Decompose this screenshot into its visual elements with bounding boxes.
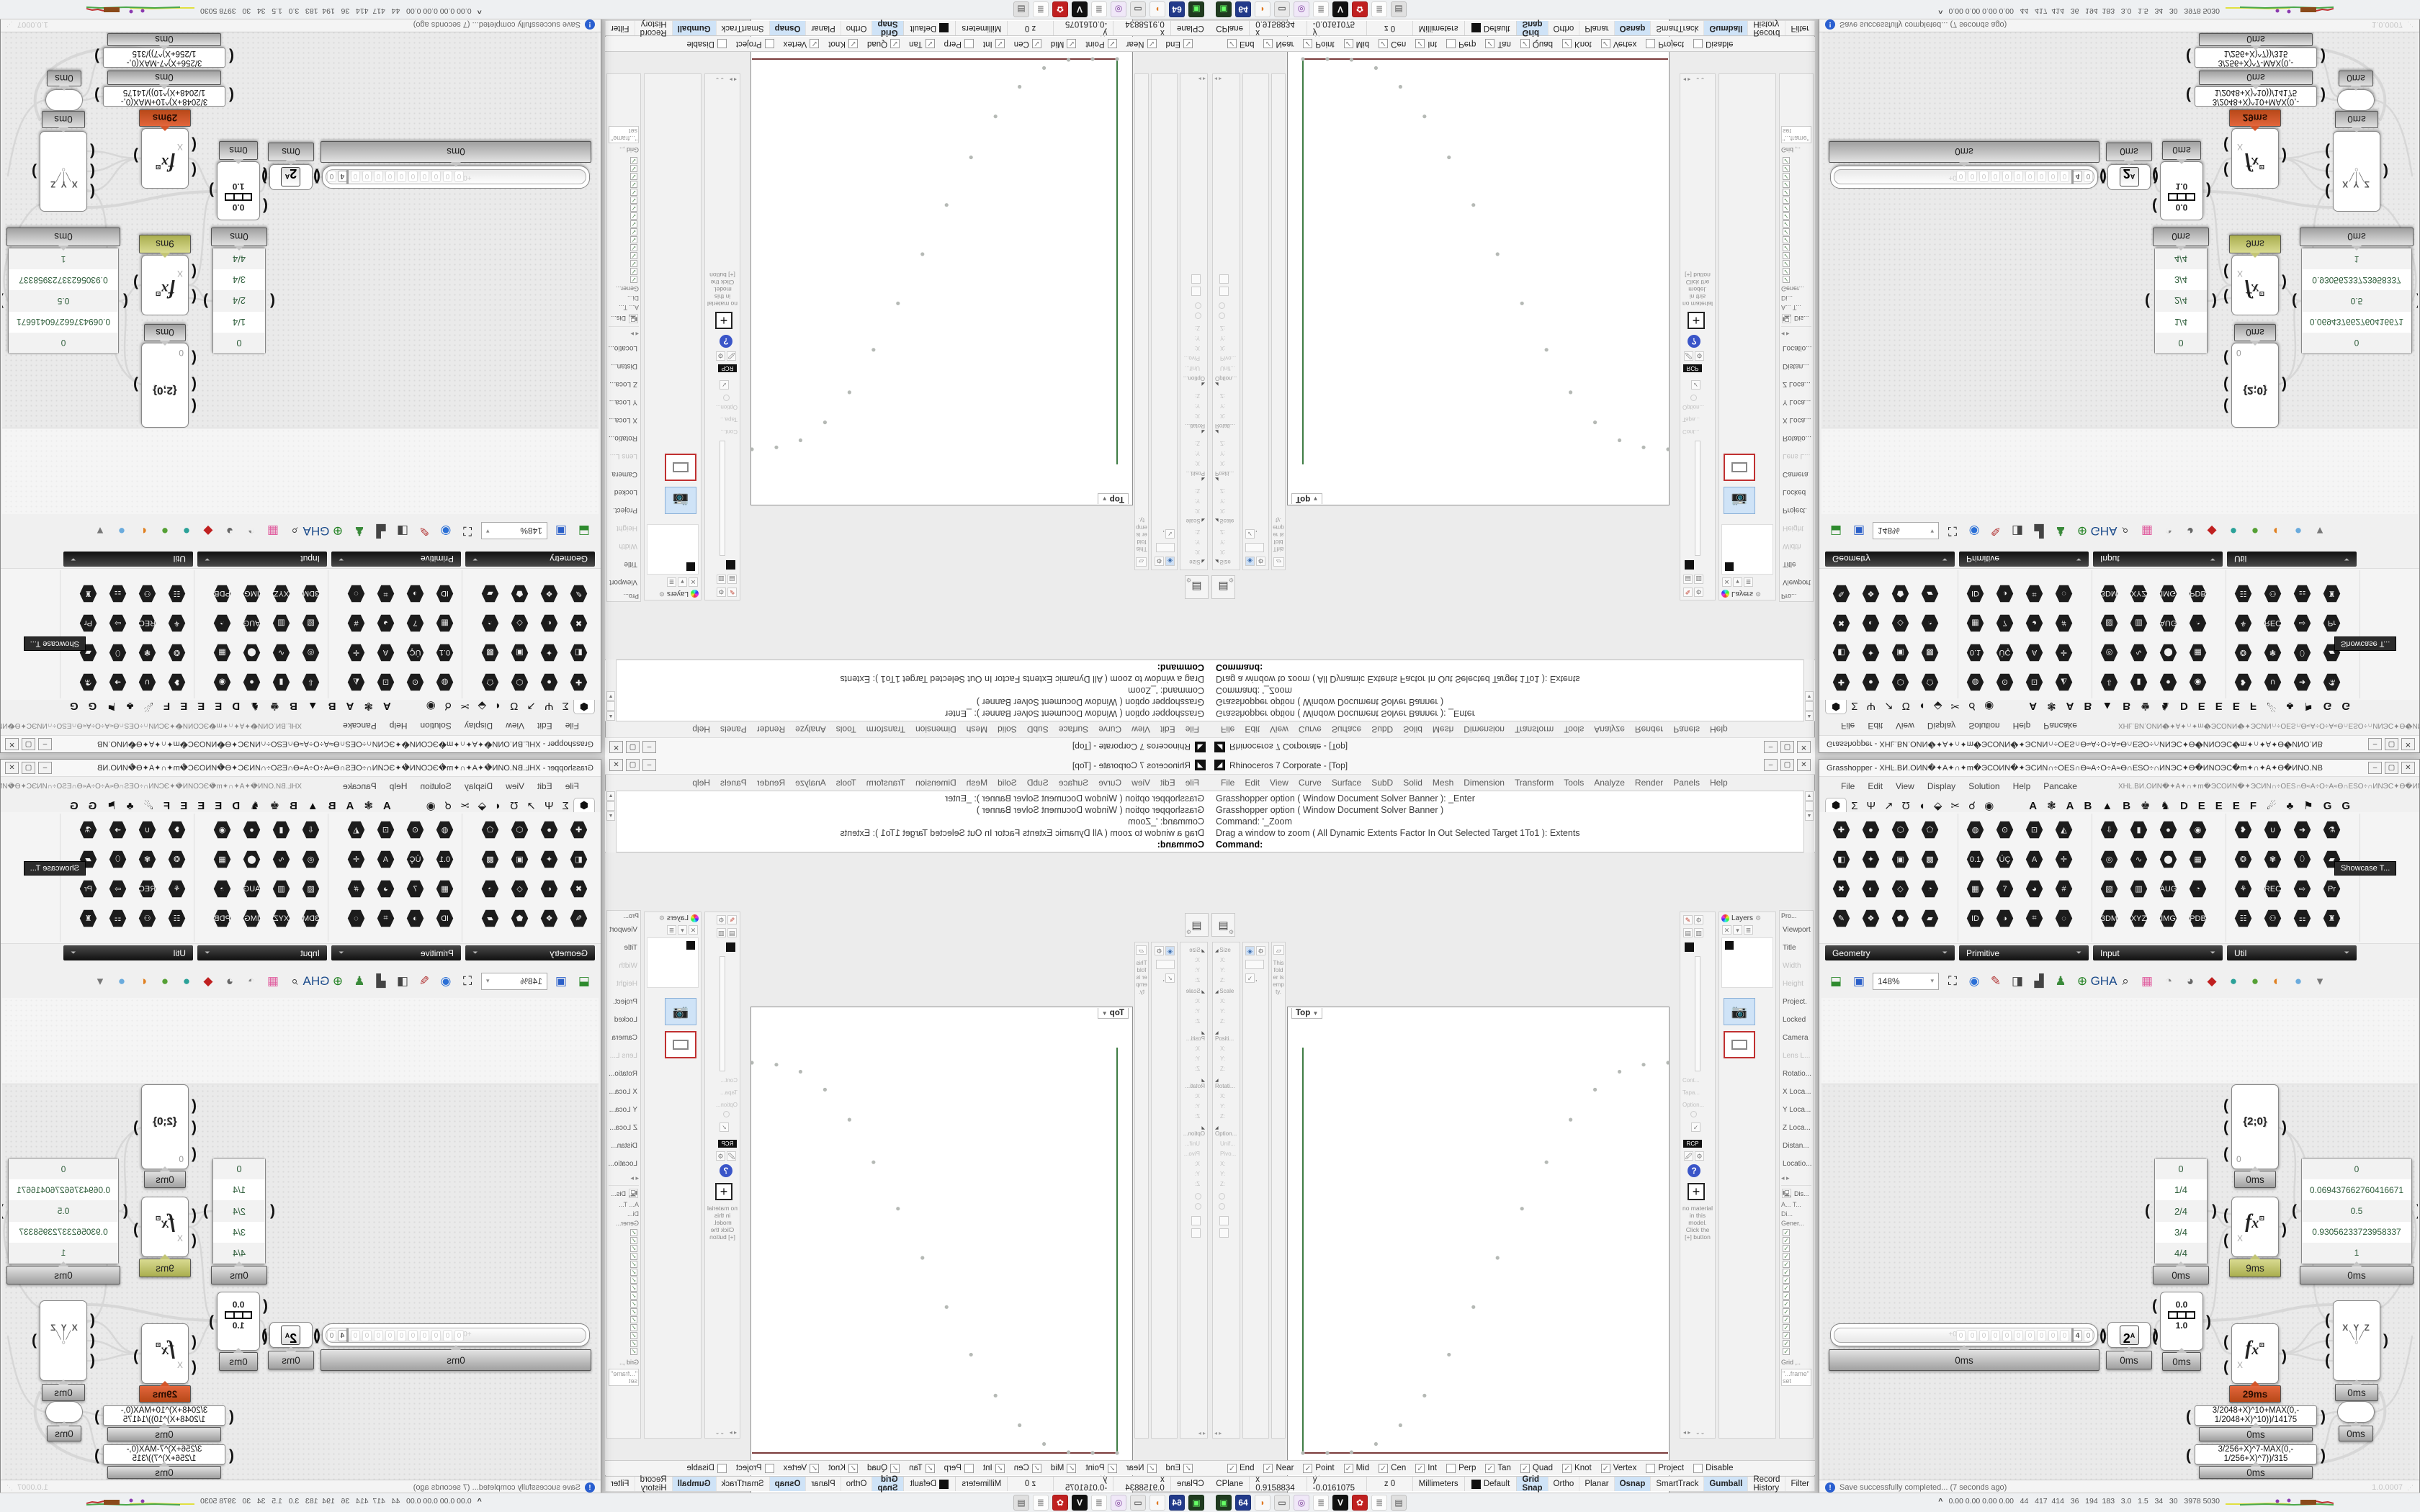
menu-item[interactable]: Render [752, 724, 790, 734]
component-icon[interactable]: ◭ [341, 667, 371, 697]
plugin-tab[interactable]: ⚑ [2298, 700, 2318, 713]
osnap-toggle[interactable]: Tan [909, 1464, 935, 1473]
menu-item[interactable]: View [499, 781, 531, 791]
status-toggle[interactable]: Gumball [672, 1477, 716, 1491]
component-icon[interactable]: ● [237, 667, 266, 697]
gh-canvas[interactable]: {2;0} 0 ( ( ( ) 0ms 01/42/43/44/4 ( ) 0m… [2, 998, 599, 1480]
node-panel-values[interactable]: 00.0694376627604166710.50.93056233723958… [8, 248, 119, 354]
plugin-tab[interactable]: ☄ [2262, 700, 2281, 713]
minimize-button[interactable]: ‒ [2368, 738, 2382, 750]
component-icon[interactable]: ✖ [1827, 608, 1856, 638]
display-checkbox-row[interactable]: ✓ [607, 1292, 637, 1300]
component-icon[interactable]: ▦ [1960, 874, 1990, 904]
osnap-toggle[interactable]: Point [1303, 40, 1334, 49]
component-icon[interactable]: 3DM [296, 904, 326, 933]
property-row[interactable]: Rotatio... [607, 429, 640, 447]
category-tab-icon[interactable]: ↗ [522, 700, 540, 713]
plugin-tab[interactable]: E [175, 700, 192, 712]
menu-item[interactable]: Pancake [336, 781, 383, 791]
category-tab-icon[interactable]: ↗ [1880, 700, 1898, 713]
menu-item[interactable]: Surface [1054, 724, 1093, 734]
toolbar-icon[interactable]: ◆ [2202, 522, 2221, 541]
display-checkbox-row[interactable]: ✓ [1783, 235, 1813, 243]
component-icon[interactable]: ▩ [1915, 845, 1945, 874]
property-row[interactable]: Distan... [1780, 1137, 1813, 1155]
group-label-geometry[interactable]: Geometry⏷ [1825, 945, 1955, 960]
taskbar-app-icon[interactable]: ✿ [1052, 1, 1068, 17]
osnap-toggle[interactable]: Tan [1485, 1464, 1511, 1473]
component-icon[interactable]: ⬤ [237, 638, 266, 667]
plugin-tab[interactable]: G [2318, 700, 2337, 712]
component-icon[interactable]: 0.1 [430, 845, 460, 874]
toolbar-icon[interactable]: ▾ [2311, 522, 2329, 541]
category-tab-icon[interactable]: ◉ [1980, 799, 1998, 812]
property-row[interactable]: X Loca... [1780, 1083, 1813, 1101]
component-icon[interactable]: ◑ [1990, 904, 2020, 933]
status-toggle[interactable]: Filter [605, 1477, 635, 1491]
component-icon[interactable]: ✚ [564, 815, 593, 845]
menu-item[interactable]: SubD [1366, 724, 1398, 734]
component-icon[interactable]: ◎ [2094, 845, 2124, 874]
display-checkbox-row[interactable]: ✓ [1783, 228, 1813, 235]
menu-item[interactable]: Panels [1668, 724, 1705, 734]
plugin-tab[interactable]: ❃ [2042, 700, 2061, 713]
menu-item[interactable]: Panels [1668, 778, 1705, 788]
category-tab-icon[interactable]: Ʊ [1898, 800, 1914, 812]
rcp-badge[interactable]: RCP [1683, 1140, 1702, 1148]
component-icon[interactable]: ⚇ [2258, 579, 2287, 608]
component-icon[interactable]: 7 [1990, 874, 2020, 904]
component-icon[interactable]: ▮ [2124, 667, 2154, 697]
node-expression-fx1[interactable]: fx⊡ X ( ( ) [141, 255, 189, 315]
open-file-icon[interactable]: ⬓ [1827, 522, 1845, 541]
group-label-primitive[interactable]: Primitive⏷ [1959, 552, 2089, 567]
open-file-icon[interactable]: ⬓ [575, 972, 593, 991]
plugin-tab[interactable]: E [2210, 800, 2228, 812]
display-checkbox-row[interactable]: ✓ [1783, 1308, 1813, 1316]
node-panel-expression1[interactable]: 3/2048+X)^10+MAX(0,- 1/2048+X)^10))/1417… [103, 86, 225, 107]
component-icon[interactable]: ◇ [505, 874, 534, 904]
display-checkbox-row[interactable]: ✓ [607, 204, 637, 212]
slider-grip[interactable] [346, 169, 349, 184]
plugin-tab[interactable]: ☄ [139, 799, 158, 812]
menu-item[interactable]: Surface [1327, 724, 1366, 734]
properties-panel[interactable]: Pro... ViewportTitleWidthHeightProject.L… [606, 73, 641, 602]
component-icon[interactable]: ⬡ [1886, 667, 1915, 697]
menu-item[interactable]: SubD [1366, 778, 1398, 788]
category-tab-icon[interactable]: ☌ [440, 700, 456, 713]
component-icon[interactable]: ⊡ [371, 667, 400, 697]
status-toggle[interactable]: SmartTrack [716, 1477, 769, 1491]
status-toggle[interactable]: SmartTrack [716, 21, 769, 35]
osnap-toggle[interactable]: Tan [909, 40, 935, 49]
component-icon[interactable]: ◔ [475, 874, 505, 904]
viewport-title-chip[interactable]: Top ▼ [1291, 493, 1322, 504]
menu-item[interactable]: Solid [1398, 724, 1428, 734]
display-checkbox-row[interactable]: ✓ [1783, 1324, 1813, 1332]
menu-item[interactable]: Edit [531, 721, 559, 731]
osnap-toggle[interactable]: Point [1085, 1464, 1116, 1473]
camera-button[interactable]: 📷 [665, 487, 696, 514]
menu-item[interactable]: Transform [1510, 778, 1559, 788]
system-monitor[interactable]: ^ 0.00 0.00 0.00 0.00 44 417 414 36 194 … [1938, 5, 2334, 17]
osnap-toggle[interactable]: Quad [1520, 40, 1553, 49]
menu-item[interactable]: Help [1705, 724, 1733, 734]
menu-item[interactable]: Solid [992, 724, 1022, 734]
component-icon[interactable]: ◑ [1990, 579, 2020, 608]
maximize-button[interactable]: ▢ [22, 738, 35, 750]
node-panel-fractions[interactable]: 01/42/43/44/4 ( ) [2154, 248, 2208, 354]
toolbar-icon[interactable]: ◉ [1965, 972, 1984, 991]
plugin-tab[interactable]: ♞ [2155, 799, 2174, 812]
component-icon[interactable]: ⇩ [2094, 815, 2124, 845]
plugin-tab[interactable]: F [2245, 700, 2262, 712]
box-edit-panel[interactable]: Size X:Y:Z: Scale X:Y:Z: Positi... X:Y:Z… [1212, 73, 1240, 570]
status-toggle[interactable]: Planar [805, 1477, 840, 1491]
component-icon[interactable]: # [341, 874, 371, 904]
group-label-input[interactable]: Input⏷ [2093, 552, 2223, 567]
plugin-tab[interactable]: ▲ [2097, 700, 2117, 712]
component-icon[interactable]: ◕ [371, 874, 400, 904]
component-icon[interactable]: ⚏ [103, 904, 133, 933]
component-icon[interactable]: ⊙ [1990, 815, 2020, 845]
taskbar-app-icon[interactable]: ✿ [1352, 1, 1368, 17]
component-icon[interactable]: ⚗ [73, 815, 103, 845]
toolbar-icon[interactable]: ▦ [264, 522, 282, 541]
command-scrollbar[interactable]: ▲▼ [1803, 791, 1814, 852]
component-icon[interactable]: ✾ [133, 638, 162, 667]
node-path-viewer[interactable]: {2;0} 0 ( ( ( ) [141, 1084, 189, 1169]
category-tab-icon[interactable]: ✂ [1946, 799, 1964, 812]
component-icon[interactable]: ▦ [430, 874, 460, 904]
menu-item[interactable]: Tools [1559, 778, 1589, 788]
gh-titlebar[interactable]: Grasshopper - XHĿ.ВИ.ОИN�✦А✦∩✦m�ЭСОИN�✦Э… [1819, 735, 2419, 752]
status-layer[interactable]: Default [903, 1477, 956, 1491]
taskbar-app-icon[interactable]: ▣ [1216, 1, 1232, 17]
component-icon[interactable]: ⬟ [505, 904, 534, 933]
display-checkbox-row[interactable]: ✓ [607, 212, 637, 220]
status-toggle[interactable]: Filter [1785, 21, 1815, 35]
toolbar-icon[interactable]: ⛶ [1943, 522, 1962, 541]
menu-item[interactable]: Mesh [962, 778, 992, 788]
component-icon[interactable]: ◭ [2049, 667, 2079, 697]
menu-item[interactable]: Display [1921, 721, 1962, 731]
close-button[interactable]: ✕ [609, 741, 623, 753]
viewport-title-chip[interactable]: Top ▼ [1098, 493, 1129, 504]
component-icon[interactable]: ∿ [266, 845, 296, 874]
component-icon[interactable]: ID [430, 904, 460, 933]
component-icon[interactable]: ◎ [2094, 638, 2124, 667]
top-viewport[interactable]: Top ▼ y x [1287, 0, 1670, 505]
component-icon[interactable]: AUG [237, 608, 266, 638]
component-icon[interactable]: ▰ [1915, 579, 1945, 608]
taskbar-app-icon[interactable]: ▭ [1274, 1, 1290, 17]
component-icon[interactable]: 0.1 [430, 638, 460, 667]
osnap-toggle[interactable]: Cen [1014, 1464, 1041, 1473]
status-cplane[interactable]: CPlane [1210, 1477, 1250, 1491]
component-icon[interactable]: ⬟ [1886, 579, 1915, 608]
component-icon[interactable]: ❥ [2228, 815, 2258, 845]
component-icon[interactable]: ✛ [341, 638, 371, 667]
component-icon[interactable]: ▩ [475, 638, 505, 667]
menu-item[interactable]: File [1216, 724, 1240, 734]
osnap-toggle[interactable]: Project [736, 1464, 774, 1473]
toolbar-icon[interactable]: ● [2246, 972, 2264, 991]
property-row[interactable]: Locked [607, 1011, 640, 1029]
taskbar-app-icon[interactable]: ◗ [1149, 1, 1165, 17]
osnap-toggle[interactable]: Point [1303, 1464, 1334, 1473]
menu-item[interactable]: SubD [1022, 724, 1054, 734]
panel-scroll[interactable]: ◂ ▸ [1198, 76, 1206, 82]
display-checkbox-row[interactable]: ✓ [1783, 1300, 1813, 1308]
component-icon[interactable]: ◔ [2183, 608, 2213, 638]
toolbar-icon[interactable]: ⌕ [2116, 522, 2135, 541]
command-scrollbar[interactable]: ▲▼ [606, 660, 617, 721]
component-icon[interactable]: ⚘ [162, 874, 192, 904]
toolbar-icon[interactable]: ● [112, 522, 131, 541]
add-material-button[interactable]: + [1688, 1183, 1705, 1200]
menu-item[interactable]: Mesh [1428, 724, 1458, 734]
save-file-icon[interactable]: ▣ [1850, 972, 1868, 991]
property-row[interactable]: Rotatio... [1780, 1065, 1813, 1083]
component-icon[interactable]: Pr [73, 874, 103, 904]
slider-grip[interactable] [2071, 1328, 2074, 1343]
category-tab-icon[interactable]: ↗ [522, 799, 540, 812]
component-icon[interactable]: ⇩ [296, 815, 326, 845]
viewport-title-chip[interactable]: Top ▼ [1291, 1008, 1322, 1019]
menu-item[interactable]: Solution [1962, 781, 2006, 791]
property-row[interactable]: Height [1780, 975, 1813, 993]
display-checkbox-row[interactable]: ✓ [607, 164, 637, 172]
osnap-toggle[interactable]: Point [1085, 40, 1116, 49]
analysis-panel[interactable]: ✎⚙ ▤▥ Cont...Tapa...Option... ✓ RCP 🖉⚙ ?… [1680, 73, 1716, 600]
component-icon[interactable]: ⬤ [2154, 845, 2183, 874]
component-icon[interactable]: ◇ [505, 608, 534, 638]
osnap-toggle[interactable]: Quad [867, 40, 900, 49]
osnap-toggle[interactable]: Cen [1014, 40, 1041, 49]
menu-item[interactable]: File [1216, 778, 1240, 788]
toolbar-icon[interactable]: ◐ [2267, 522, 2286, 541]
node-remap[interactable]: 0.0 1.0 ( ( ) [217, 161, 260, 220]
component-icon[interactable]: ◌ [2049, 904, 2079, 933]
left-panel-2[interactable]: ◈⚙ ✓, [1242, 73, 1269, 570]
display-checkbox-row[interactable]: ✓ [607, 1253, 637, 1261]
menu-item[interactable]: Edit [1240, 724, 1265, 734]
layer-swatch[interactable] [1685, 560, 1694, 570]
component-icon[interactable]: ▮ [266, 667, 296, 697]
help-icon[interactable]: ? [1688, 1164, 1700, 1177]
taskbar-app-icon[interactable]: ▭ [1130, 1495, 1146, 1511]
toolbar-button[interactable]: ▤⚙ [1211, 575, 1235, 599]
display-checkbox-row[interactable]: ✓ [1783, 196, 1813, 204]
gh-canvas[interactable]: {2;0} 0 ( ( ( ) 0ms 01/42/43/44/4 ( ) 0m… [2, 32, 599, 514]
node-panel-fractions[interactable]: 01/42/43/44/4 ( ) [212, 248, 266, 354]
component-icon[interactable]: ⬯ [2287, 845, 2317, 874]
maximize-button[interactable]: ▢ [626, 741, 640, 753]
component-icon[interactable]: ◇ [1886, 608, 1915, 638]
category-tab-icon[interactable]: ◉ [422, 799, 440, 812]
taskbar-app-icon[interactable]: ◎ [1294, 1495, 1309, 1511]
minimize-button[interactable]: ‒ [38, 738, 52, 750]
property-row[interactable]: Height [607, 519, 640, 537]
component-icon[interactable]: ⊡ [2020, 815, 2049, 845]
component-icon[interactable]: 0.1 [1960, 638, 1990, 667]
display-checkbox-row[interactable]: ✓ [1783, 1245, 1813, 1253]
menu-item[interactable]: Tools [1559, 724, 1589, 734]
osnap-toggle[interactable]: Int [1415, 40, 1437, 49]
component-icon[interactable]: ⇨ [103, 608, 133, 638]
property-row[interactable]: Y Loca... [607, 1101, 640, 1119]
status-layer[interactable]: Default [1465, 21, 1518, 35]
rhino-titlebar[interactable]: ◢ Rhinoceros 7 Corporate - [Top] ‒ ▢ ✕ [605, 756, 1210, 775]
taskbar-app-icon[interactable]: ≣ [1371, 1, 1387, 17]
toolbar-button[interactable]: ▤⚙ [1185, 575, 1209, 599]
gear-icon[interactable]: ⚙ [1755, 914, 1761, 922]
display-checkbox-row[interactable]: ✓ [607, 1348, 637, 1356]
taskbar-app-icon[interactable]: ≣ [1033, 1, 1049, 17]
taskbar-app-icon[interactable]: ▭ [1130, 1, 1146, 17]
component-icon[interactable]: ◕ [2020, 874, 2049, 904]
property-row[interactable]: Title [1780, 555, 1813, 573]
layer-swatch[interactable] [1685, 942, 1694, 952]
toolbar-icon[interactable]: ⛶ [1943, 972, 1962, 991]
plugin-tab[interactable]: ☄ [2262, 799, 2281, 812]
panel-scroll[interactable]: ◂ ▸ [1198, 1430, 1206, 1436]
osnap-toggle[interactable]: Disable [1693, 40, 1733, 49]
component-icon[interactable]: ✚ [1827, 815, 1856, 845]
component-icon[interactable]: ▥ [266, 608, 296, 638]
menu-item[interactable]: View [1889, 721, 1921, 731]
plugin-tab[interactable]: D [227, 700, 245, 712]
osnap-toggle[interactable]: Near [1263, 1464, 1294, 1473]
property-row[interactable]: Z Loca... [1780, 1119, 1813, 1137]
display-checkbox-row[interactable]: ✓ [607, 1332, 637, 1340]
resize-grip[interactable]: ⋰ [6, 21, 13, 29]
display-checkbox-row[interactable]: ✓ [607, 1300, 637, 1308]
node-panel-expression2[interactable]: 3/256+X)^7-MAX(0,- 1/256+X)^7))/315 ( ) [2195, 48, 2317, 68]
component-icon[interactable]: ▮ [266, 815, 296, 845]
display-checkbox-row[interactable]: ✓ [607, 1237, 637, 1245]
display-checkbox-row[interactable]: ✓ [607, 267, 637, 275]
status-toggle[interactable]: Record History [635, 21, 672, 35]
menu-item[interactable]: Tools [831, 724, 861, 734]
taskbar-app-icon[interactable]: ≣ [1091, 1, 1107, 17]
component-icon[interactable]: ◌ [341, 904, 371, 933]
toolbar-icon[interactable]: ● [177, 522, 196, 541]
property-row[interactable]: Locatio... [607, 1155, 640, 1173]
status-units[interactable]: Millimeters [1413, 21, 1465, 35]
node-number-slider[interactable]: +0 0 0 0 0 0 0 0 0 0 0 4 0 ) [1830, 1323, 2098, 1346]
component-icon[interactable]: ◧ [564, 845, 593, 874]
display-checkbox-row[interactable]: ✓ [1783, 1261, 1813, 1269]
zoom-level-select[interactable]: 148%▾ [481, 523, 547, 540]
category-tab-icon[interactable]: ◖ [1914, 800, 1930, 812]
osnap-toggle[interactable]: Mid [1344, 1464, 1370, 1473]
category-tab-icon[interactable]: ◖ [1914, 700, 1930, 712]
plugin-tab[interactable]: ❃ [359, 799, 378, 812]
node-remap[interactable]: 0.0 1.0 ( ( ) [217, 1292, 260, 1351]
tab-params[interactable]: ⬢ [573, 700, 595, 714]
toolbar-icon[interactable]: ◕ [2181, 972, 2200, 991]
node-expression-fx1[interactable]: fx⊡ X ( ( ) [2231, 255, 2279, 315]
osnap-toggle[interactable]: Perp [944, 1464, 974, 1473]
component-icon[interactable]: PDB [207, 904, 237, 933]
component-icon[interactable]: ✦ [1856, 845, 1886, 874]
property-row[interactable]: Locked [1780, 483, 1813, 501]
category-tab-icon[interactable]: ◖ [490, 800, 506, 812]
menu-item[interactable]: Edit [1240, 778, 1265, 788]
command-prompt[interactable]: Command: [618, 839, 1204, 850]
display-checkbox-row[interactable]: ✓ [1783, 204, 1813, 212]
category-tab-icon[interactable]: ✂ [456, 799, 474, 812]
component-icon[interactable]: ⌗ [2020, 904, 2049, 933]
osnap-toggle[interactable]: Near [1263, 40, 1294, 49]
component-icon[interactable]: ♜ [2317, 579, 2347, 608]
component-icon[interactable]: ◧ [564, 638, 593, 667]
osnap-toggle[interactable]: Perp [1446, 1464, 1476, 1473]
property-row[interactable]: Y Loca... [1780, 393, 1813, 411]
component-icon[interactable]: ⇩ [296, 667, 326, 697]
category-tab-icon[interactable]: Σ [557, 800, 573, 812]
plugin-tab[interactable]: ⚑ [102, 799, 121, 812]
display-checkbox-row[interactable]: ✓ [1783, 1316, 1813, 1324]
property-row[interactable]: X Loca... [607, 411, 640, 429]
plugin-tab[interactable]: E [2228, 700, 2245, 712]
maximize-button[interactable]: ▢ [626, 759, 640, 771]
menu-item[interactable]: Analyze [790, 778, 831, 788]
status-toggle[interactable]: Grid Snap [871, 1477, 902, 1491]
component-icon[interactable]: ◉ [2183, 667, 2213, 697]
component-icon[interactable]: ❥ [162, 815, 192, 845]
component-icon[interactable]: 7 [1990, 608, 2020, 638]
plugin-tab[interactable]: B [284, 800, 302, 812]
left-panel-2[interactable]: ◈⚙ ✓, [1151, 73, 1178, 570]
resize-grip[interactable]: ⋰ [2407, 1484, 2414, 1492]
node-construct-point[interactable]: X Y Z ╲│╱ ○ ( ( ( ) [2333, 131, 2380, 212]
rcp-badge[interactable]: RCP [718, 1140, 737, 1148]
component-icon[interactable]: ✚ [564, 667, 593, 697]
toolbar-icon[interactable]: ● [156, 972, 174, 991]
display-checkbox-row[interactable]: ✓ [1783, 1269, 1813, 1277]
node-relay[interactable] [45, 89, 83, 111]
toolbar-icon[interactable]: ◔ [242, 972, 261, 991]
taskbar-app-icon[interactable]: V [1072, 1, 1088, 17]
plugin-tab[interactable]: D [227, 800, 245, 812]
category-tab-icon[interactable]: Ʊ [506, 700, 522, 712]
component-icon[interactable]: XYZ [266, 904, 296, 933]
menu-item[interactable]: Transform [861, 778, 910, 788]
taskbar-app-icon[interactable]: ◗ [1255, 1, 1270, 17]
help-icon[interactable]: ? [720, 1164, 732, 1177]
component-icon[interactable]: ◔ [207, 608, 237, 638]
component-icon[interactable]: ▧ [2094, 608, 2124, 638]
property-row[interactable]: Project. [1780, 501, 1813, 519]
component-icon[interactable]: ❖ [1856, 579, 1886, 608]
component-icon[interactable]: ⬟ [1886, 904, 1915, 933]
zoom-level-select[interactable]: 148%▾ [1873, 523, 1939, 540]
left-panel-2[interactable]: ◈⚙ ✓, [1242, 942, 1269, 1439]
component-icon[interactable]: ▣ [505, 845, 534, 874]
status-toggle[interactable]: Planar [1579, 1477, 1614, 1491]
display-button[interactable] [665, 1031, 696, 1058]
taskbar-app-icon[interactable]: V [1332, 1495, 1348, 1511]
component-icon[interactable]: ⬡ [505, 815, 534, 845]
menu-item[interactable]: File [559, 781, 586, 791]
command-scrollbar[interactable]: ▲▼ [1803, 660, 1814, 721]
component-icon[interactable]: ID [1960, 904, 1990, 933]
taskbar-app-icon[interactable]: 64 [1235, 1495, 1251, 1511]
node-path-viewer[interactable]: {2;0} 0 ( ( ( ) [2231, 343, 2279, 428]
